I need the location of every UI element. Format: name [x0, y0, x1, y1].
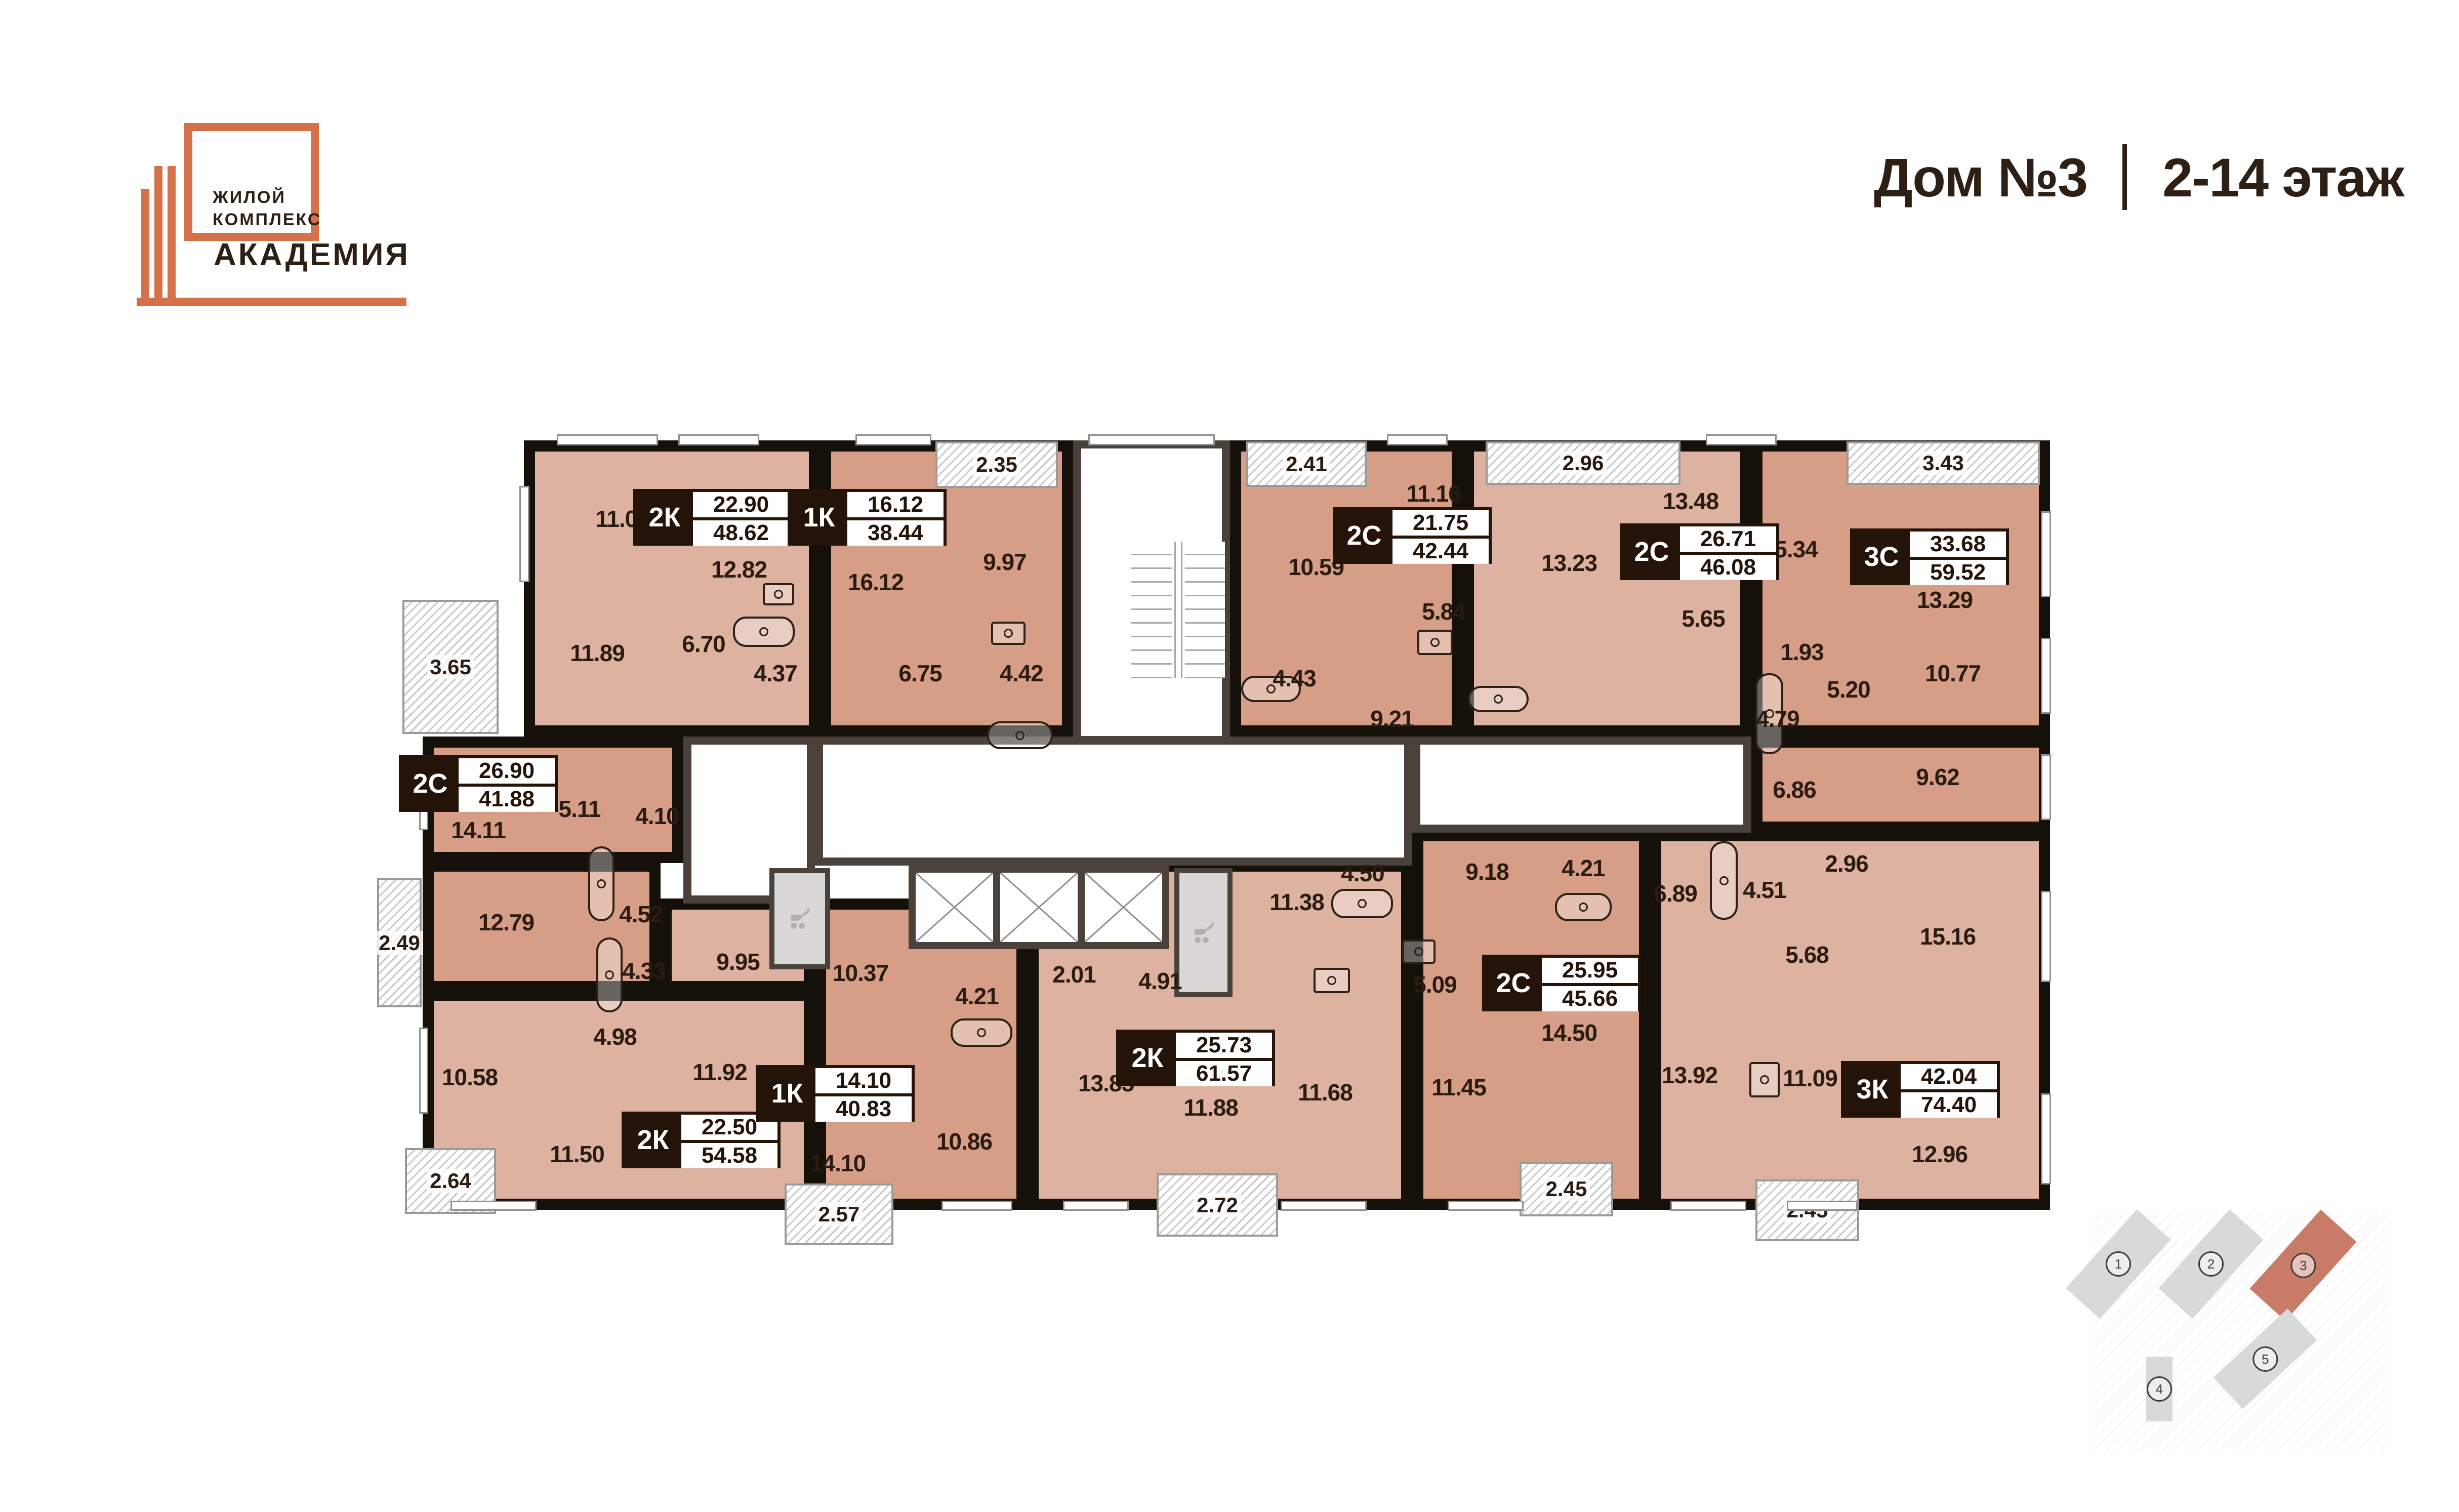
room-area-label: 6.89 [1654, 880, 1697, 907]
room-area-label: 12.79 [478, 909, 534, 936]
window [1448, 1201, 1524, 1211]
living-area-value: 16.12 [847, 492, 944, 520]
room-area-label: 11.16 [1406, 480, 1461, 507]
apartment-block[interactable] [1412, 830, 1650, 1210]
window [2041, 891, 2051, 982]
room-area-label: 5.11 [559, 795, 601, 823]
site-building-number: 2 [2198, 1251, 2224, 1277]
total-area-value: 45.66 [1542, 986, 1638, 1011]
living-area-value: 26.90 [459, 758, 555, 787]
logo: ЖИЛОЙ КОМПЛЕКС АКАДЕМИЯ [137, 121, 420, 314]
floors-title: 2-14 этаж [2162, 146, 2403, 209]
stroller-icon [785, 904, 815, 934]
logo-building-bar [168, 166, 176, 298]
logo-building-bar [154, 166, 162, 298]
total-area-value: 46.08 [1680, 555, 1776, 580]
apartment-type-label: 2К [636, 492, 693, 543]
room-area-label: 4.50 [1341, 860, 1384, 887]
living-area-value: 25.73 [1176, 1033, 1272, 1061]
room-area-label: 9.18 [1465, 858, 1509, 885]
bathtub-icon [1555, 893, 1612, 921]
window [1088, 434, 1215, 445]
living-area-value: 33.68 [1910, 532, 2006, 560]
header-divider [2122, 144, 2127, 210]
balcony-area-label: 2.45 [1543, 1177, 1590, 1201]
bathtub-icon [596, 937, 623, 1012]
elevator-shaft [1000, 873, 1078, 942]
room-area-label: 16.12 [848, 568, 904, 596]
room-area-label: 13.23 [1541, 549, 1597, 577]
window [1706, 434, 1777, 445]
room-area-label: 10.58 [442, 1064, 498, 1091]
total-area-value: 54.58 [681, 1143, 777, 1168]
living-area-value: 26.71 [1680, 526, 1776, 555]
room-area-label: 14.50 [1541, 1019, 1597, 1046]
window [1281, 1201, 1367, 1211]
living-area-value: 21.75 [1392, 510, 1489, 539]
apartment-badge-2С[interactable]: 2С25.9545.66 [1482, 955, 1641, 1011]
stair-flight [1131, 542, 1172, 678]
room-area-label: 11.89 [570, 639, 625, 667]
site-building-number: 1 [2106, 1251, 2131, 1277]
room-area-label: 9.97 [983, 548, 1027, 576]
room-area-label: 4.79 [1756, 705, 1799, 732]
elevator-bank [909, 866, 1169, 949]
room-area-label: 11.45 [1431, 1074, 1486, 1101]
living-area-value: 14.10 [815, 1068, 912, 1096]
apartment-type-label: 1К [791, 492, 847, 543]
apartment-badge-2С[interactable]: 2С26.7146.08 [1620, 523, 1779, 580]
room-area-label: 4.37 [754, 660, 797, 687]
room-area-label: 11.38 [1269, 888, 1324, 916]
balcony: 2.96 [1486, 441, 1681, 485]
balcony: 2.57 [785, 1183, 893, 1245]
room-area-label: 4.10 [635, 802, 679, 830]
room-area-label: 13.48 [1663, 487, 1718, 515]
window [557, 434, 658, 445]
stroller-icon [1188, 918, 1219, 948]
window [941, 1201, 1012, 1211]
living-area-value: 22.90 [693, 492, 789, 520]
balcony-area-label: 2.41 [1283, 452, 1330, 476]
room-area-label: 2.01 [1052, 961, 1096, 988]
building-title: Дом №3 [1874, 146, 2087, 209]
apartment-type-label: 2С [1485, 958, 1542, 1008]
room-area-label: 11.92 [692, 1058, 747, 1086]
room-area-label: 10.37 [833, 959, 888, 987]
total-area-value: 38.44 [847, 520, 944, 546]
corridor-block [1412, 737, 1751, 833]
bathtub-icon [1710, 841, 1738, 920]
room-area-label: 11.09 [1783, 1065, 1837, 1092]
apartment-type-label: 2К [1119, 1033, 1176, 1083]
window [1063, 1201, 1129, 1211]
room-area-label: 2.96 [1825, 850, 1868, 877]
kitchen-sink-icon [1402, 939, 1436, 964]
room-area-label: 11.88 [1183, 1094, 1238, 1121]
room-area-label: 4.98 [593, 1023, 637, 1050]
apartment-type-label: 2С [1336, 510, 1392, 561]
logo-subtitle: ЖИЛОЙ КОМПЛЕКС [213, 186, 321, 231]
balcony: 2.35 [935, 441, 1058, 488]
room-area-label: 1.93 [1780, 638, 1824, 666]
site-building-5[interactable]: 5 [2214, 1309, 2317, 1409]
room-area-label: 5.65 [1682, 605, 1725, 632]
total-area-value: 40.83 [815, 1096, 912, 1122]
stairs [1131, 542, 1225, 678]
balcony-area-label: 2.57 [815, 1202, 863, 1227]
balcony-area-label: 2.49 [376, 931, 423, 955]
balcony: 2.41 [1246, 441, 1367, 487]
kitchen-sink-icon [1417, 630, 1453, 655]
header: Дом №3 2-14 этаж [1874, 144, 2403, 210]
room-area-label: 12.96 [1912, 1140, 1968, 1168]
room-area-label: 4.42 [1000, 660, 1043, 687]
logo-title: АКАДЕМИЯ [214, 237, 410, 273]
apartment-badge-2С[interactable]: 2С21.7542.44 [1333, 507, 1492, 564]
site-building-2[interactable]: 2 [2158, 1209, 2263, 1319]
balcony: 3.43 [1847, 441, 2040, 485]
window [519, 486, 529, 582]
apartment-badge-2К[interactable]: 2К25.7361.57 [1116, 1030, 1275, 1086]
living-area-value: 42.04 [1901, 1064, 1997, 1092]
kitchen-sink-icon [763, 583, 794, 605]
room-area-label: 15.16 [1920, 923, 1976, 950]
apartment-badge-3К[interactable]: 3К42.0474.40 [1841, 1061, 2000, 1118]
total-area-value: 48.62 [693, 520, 789, 546]
room-area-label: 9.21 [1370, 705, 1414, 732]
room-area-label: 4.51 [1743, 876, 1786, 904]
room-area-label: 5.09 [1413, 971, 1457, 998]
room-area-label: 11.68 [1298, 1079, 1353, 1106]
kitchen-sink-icon [991, 622, 1026, 645]
kitchen-sink-icon [1314, 968, 1350, 993]
room-area-label: 6.75 [898, 660, 942, 687]
bathtub-icon [733, 617, 795, 647]
site-building-3[interactable]: 3 [2249, 1210, 2356, 1321]
corridor-block [815, 737, 1412, 866]
apartment-type-label: 3К [1844, 1064, 1901, 1115]
total-area-value: 61.57 [1176, 1061, 1272, 1086]
balcony: 2.49 [377, 878, 422, 1007]
stroller-room [769, 868, 830, 969]
window [450, 1201, 537, 1211]
balcony-area-label: 3.65 [427, 655, 474, 679]
bathtub-icon [951, 1018, 1012, 1047]
room-area-label: 13.29 [1917, 586, 1973, 614]
total-area-value: 42.44 [1392, 539, 1489, 564]
room-area-label: 5.34 [1774, 536, 1818, 563]
window [2041, 638, 2051, 714]
apartment-type-label: 3С [1853, 532, 1910, 582]
balcony: 2.72 [1157, 1173, 1278, 1237]
room-area-label: 9.95 [716, 948, 760, 975]
apartment-type-label: 2С [1623, 526, 1680, 577]
site-building-number: 5 [2252, 1346, 2278, 1372]
room-area-label: 4.21 [955, 983, 999, 1010]
balcony: 2.45 [1520, 1162, 1613, 1216]
living-area-value: 25.95 [1542, 958, 1638, 986]
window [419, 1028, 428, 1114]
bathtub-icon [588, 846, 614, 921]
room-area-label: 11.50 [550, 1140, 604, 1168]
apartment-badge-1К[interactable]: 1К14.1040.83 [756, 1065, 915, 1122]
kitchen-sink-icon [1749, 1062, 1780, 1097]
site-building-1[interactable]: 1 [2066, 1209, 2170, 1319]
balcony-area-label: 2.72 [1194, 1193, 1241, 1217]
window [855, 434, 931, 445]
bathtub-icon [987, 721, 1053, 749]
apartment-type-label: 2К [625, 1115, 681, 1165]
room-area-label: 10.77 [1925, 660, 1981, 687]
room-area-label: 4.33 [622, 957, 666, 985]
room-area-label: 4.91 [1138, 967, 1182, 995]
bathtub-icon [1331, 889, 1393, 918]
site-building-number: 4 [2147, 1376, 2172, 1402]
window [1787, 1201, 1858, 1211]
apartment-badge-1К[interactable]: 1К16.1238.44 [788, 489, 947, 546]
stair-flight [1185, 542, 1225, 678]
room-area-label: 14.11 [451, 816, 506, 844]
room-area-label: 5.20 [1827, 676, 1870, 703]
elevator-shaft [916, 873, 993, 942]
balcony: 3.65 [402, 600, 499, 734]
site-plan-key: 12345 [2091, 1212, 2389, 1450]
balcony-area-label: 2.35 [973, 453, 1020, 477]
apartment-badge-2К[interactable]: 2К22.9048.62 [633, 489, 792, 546]
apartment-type-label: 2С [402, 758, 459, 809]
room-area-label: 10.86 [936, 1128, 992, 1155]
total-area-value: 74.40 [1901, 1092, 1997, 1118]
room-area-label: 14.10 [810, 1150, 866, 1177]
bathtub-icon [1468, 686, 1529, 712]
room-area-label: 4.43 [1273, 665, 1316, 692]
balcony-area-label: 3.43 [1919, 451, 1967, 475]
room-area-label: 4.21 [1562, 854, 1605, 882]
logo-baseline-bar [137, 298, 406, 306]
window [2041, 754, 2051, 820]
balcony-area-label: 2.96 [1560, 451, 1607, 475]
room-area-label: 5.84 [1422, 598, 1465, 625]
room-area-label: 6.86 [1773, 776, 1816, 803]
apartment-badge-3С[interactable]: 3С33.6859.52 [1850, 528, 2009, 585]
total-area-value: 41.88 [459, 787, 555, 812]
room-area-label: 9.62 [1916, 763, 1959, 791]
window [2041, 511, 2051, 597]
balcony-area-label: 2.64 [427, 1169, 474, 1193]
room-area-label: 4.52 [619, 901, 663, 928]
room-area-label: 5.68 [1785, 941, 1829, 968]
window [1387, 434, 1448, 445]
site-building-4[interactable]: 4 [2146, 1357, 2173, 1421]
room-area-label: 6.70 [682, 630, 725, 658]
apartment-badge-2С[interactable]: 2С26.9041.88 [399, 755, 558, 812]
stair-divider [1174, 542, 1182, 678]
window [1670, 1201, 1746, 1211]
room-area-label: 13.92 [1662, 1061, 1717, 1089]
window [678, 434, 759, 445]
site-building-number: 3 [2290, 1253, 2316, 1278]
total-area-value: 59.52 [1910, 560, 2006, 585]
stroller-room [1174, 868, 1233, 997]
logo-building-bar [141, 189, 149, 298]
room-area-label: 12.82 [711, 556, 767, 583]
apartment-type-label: 1К [759, 1068, 815, 1119]
window [2041, 1093, 2051, 1184]
elevator-shaft [1085, 873, 1162, 942]
